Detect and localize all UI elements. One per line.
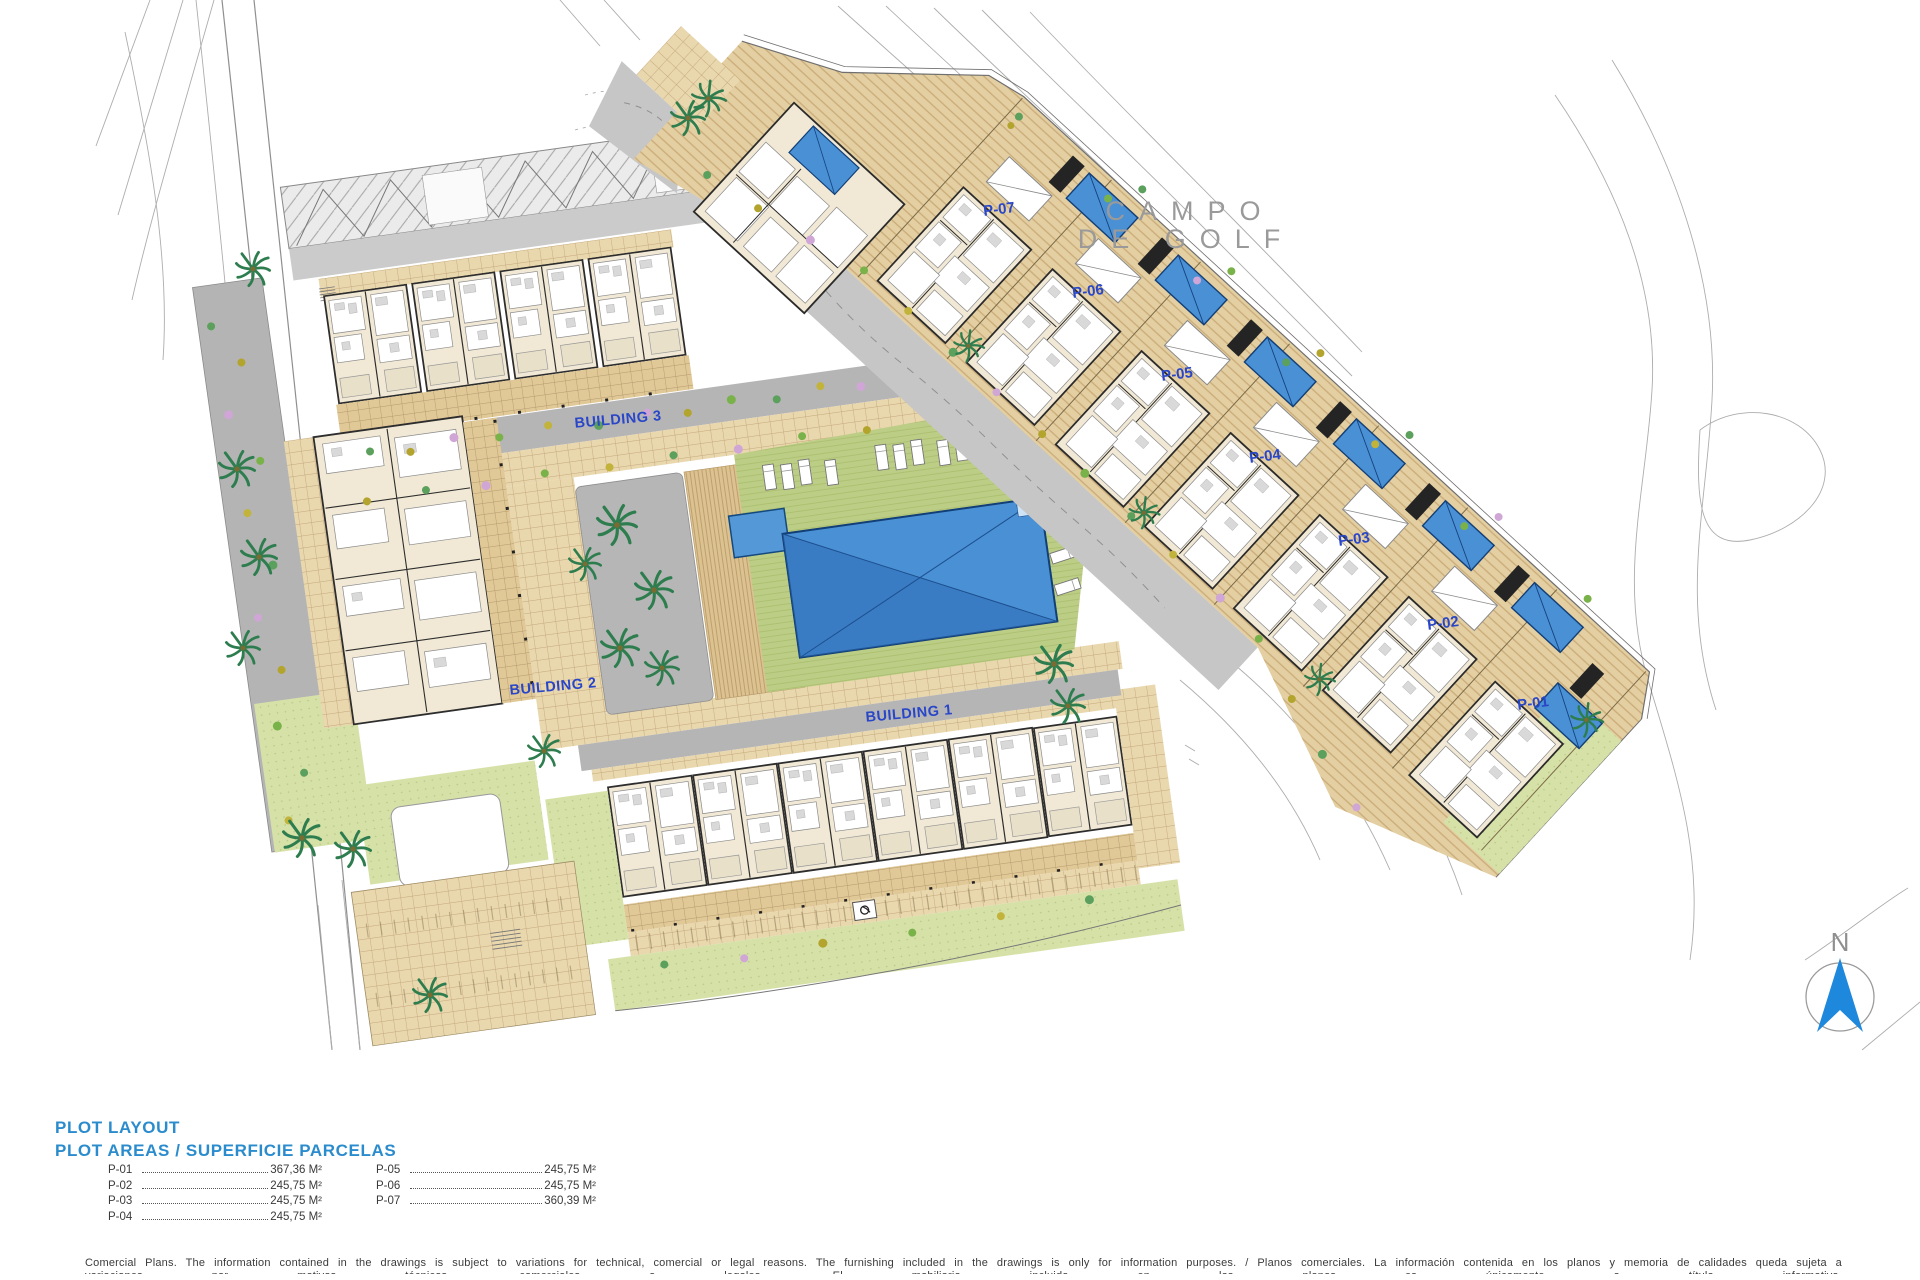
legend-plot-id: P-03 <box>108 1195 142 1207</box>
dotted-leader <box>410 1188 542 1189</box>
legend: PLOT LAYOUT PLOT AREAS / SUPERFICIE PARC… <box>55 1116 396 1162</box>
legend-plot-area: 245,75 M² <box>270 1195 322 1207</box>
legend-row: P-02 245,75 M² <box>108 1180 322 1196</box>
legend-plot-id: P-07 <box>376 1195 410 1207</box>
legend-plot-area: 245,75 M² <box>544 1180 596 1192</box>
legend-plot-id: P-04 <box>108 1211 142 1223</box>
legend-title: PLOT LAYOUT <box>55 1116 396 1139</box>
kids-pool <box>729 508 790 557</box>
legend-row: P-01 367,36 M² <box>108 1164 322 1180</box>
legend-row: P-04 245,75 M² <box>108 1211 322 1227</box>
dotted-leader <box>142 1203 268 1204</box>
golf-course-label-line1: CAMPO <box>1105 196 1274 226</box>
legend-plot-id: P-06 <box>376 1180 410 1192</box>
legend-subtitle: PLOT AREAS / SUPERFICIE PARCELAS <box>55 1139 396 1162</box>
legend-plot-area: 367,36 M² <box>270 1164 322 1176</box>
legend-plot-area: 245,75 M² <box>544 1164 596 1176</box>
legend-plot-area: 245,75 M² <box>270 1211 322 1223</box>
legend-row: P-05 245,75 M² <box>376 1164 596 1180</box>
legend-plot-id: P-02 <box>108 1180 142 1192</box>
dotted-leader <box>142 1219 268 1220</box>
legend-plot-id: P-01 <box>108 1164 142 1176</box>
legend-plot-id: P-05 <box>376 1164 410 1176</box>
site-plan-drawing: BUILDING 3 BUILDING 2 BUILDING 1 P-07 P-… <box>0 0 1920 1280</box>
dotted-leader <box>142 1172 268 1173</box>
dotted-leader <box>142 1188 268 1189</box>
legend-plot-area: 360,39 M² <box>544 1195 596 1207</box>
legend-row: P-03 245,75 M² <box>108 1195 322 1211</box>
legend-row: P-06 245,75 M² <box>376 1180 596 1196</box>
north-label: N <box>1831 927 1850 957</box>
dotted-leader <box>410 1203 542 1204</box>
disclaimer-line-1: Comercial Plans. The information contain… <box>85 1257 1842 1270</box>
site-plan-page: BUILDING 3 BUILDING 2 BUILDING 1 P-07 P-… <box>0 0 1920 1280</box>
disclaimer-line-2: variaciones por motivos técnicos, comerc… <box>85 1270 1842 1275</box>
legend-column-1: P-01 367,36 M² P-02 245,75 M² P-03 245,7… <box>108 1164 322 1226</box>
golf-course-label-line2: DE GOLF <box>1078 224 1295 254</box>
dotted-leader <box>410 1172 542 1173</box>
legend-plot-area: 245,75 M² <box>270 1180 322 1192</box>
disclaimer: Comercial Plans. The information contain… <box>85 1257 1842 1274</box>
legend-row: P-07 360,39 M² <box>376 1195 596 1211</box>
disabled-parking-icon <box>853 900 877 921</box>
legend-column-2: P-05 245,75 M² P-06 245,75 M² P-07 360,3… <box>376 1164 596 1211</box>
